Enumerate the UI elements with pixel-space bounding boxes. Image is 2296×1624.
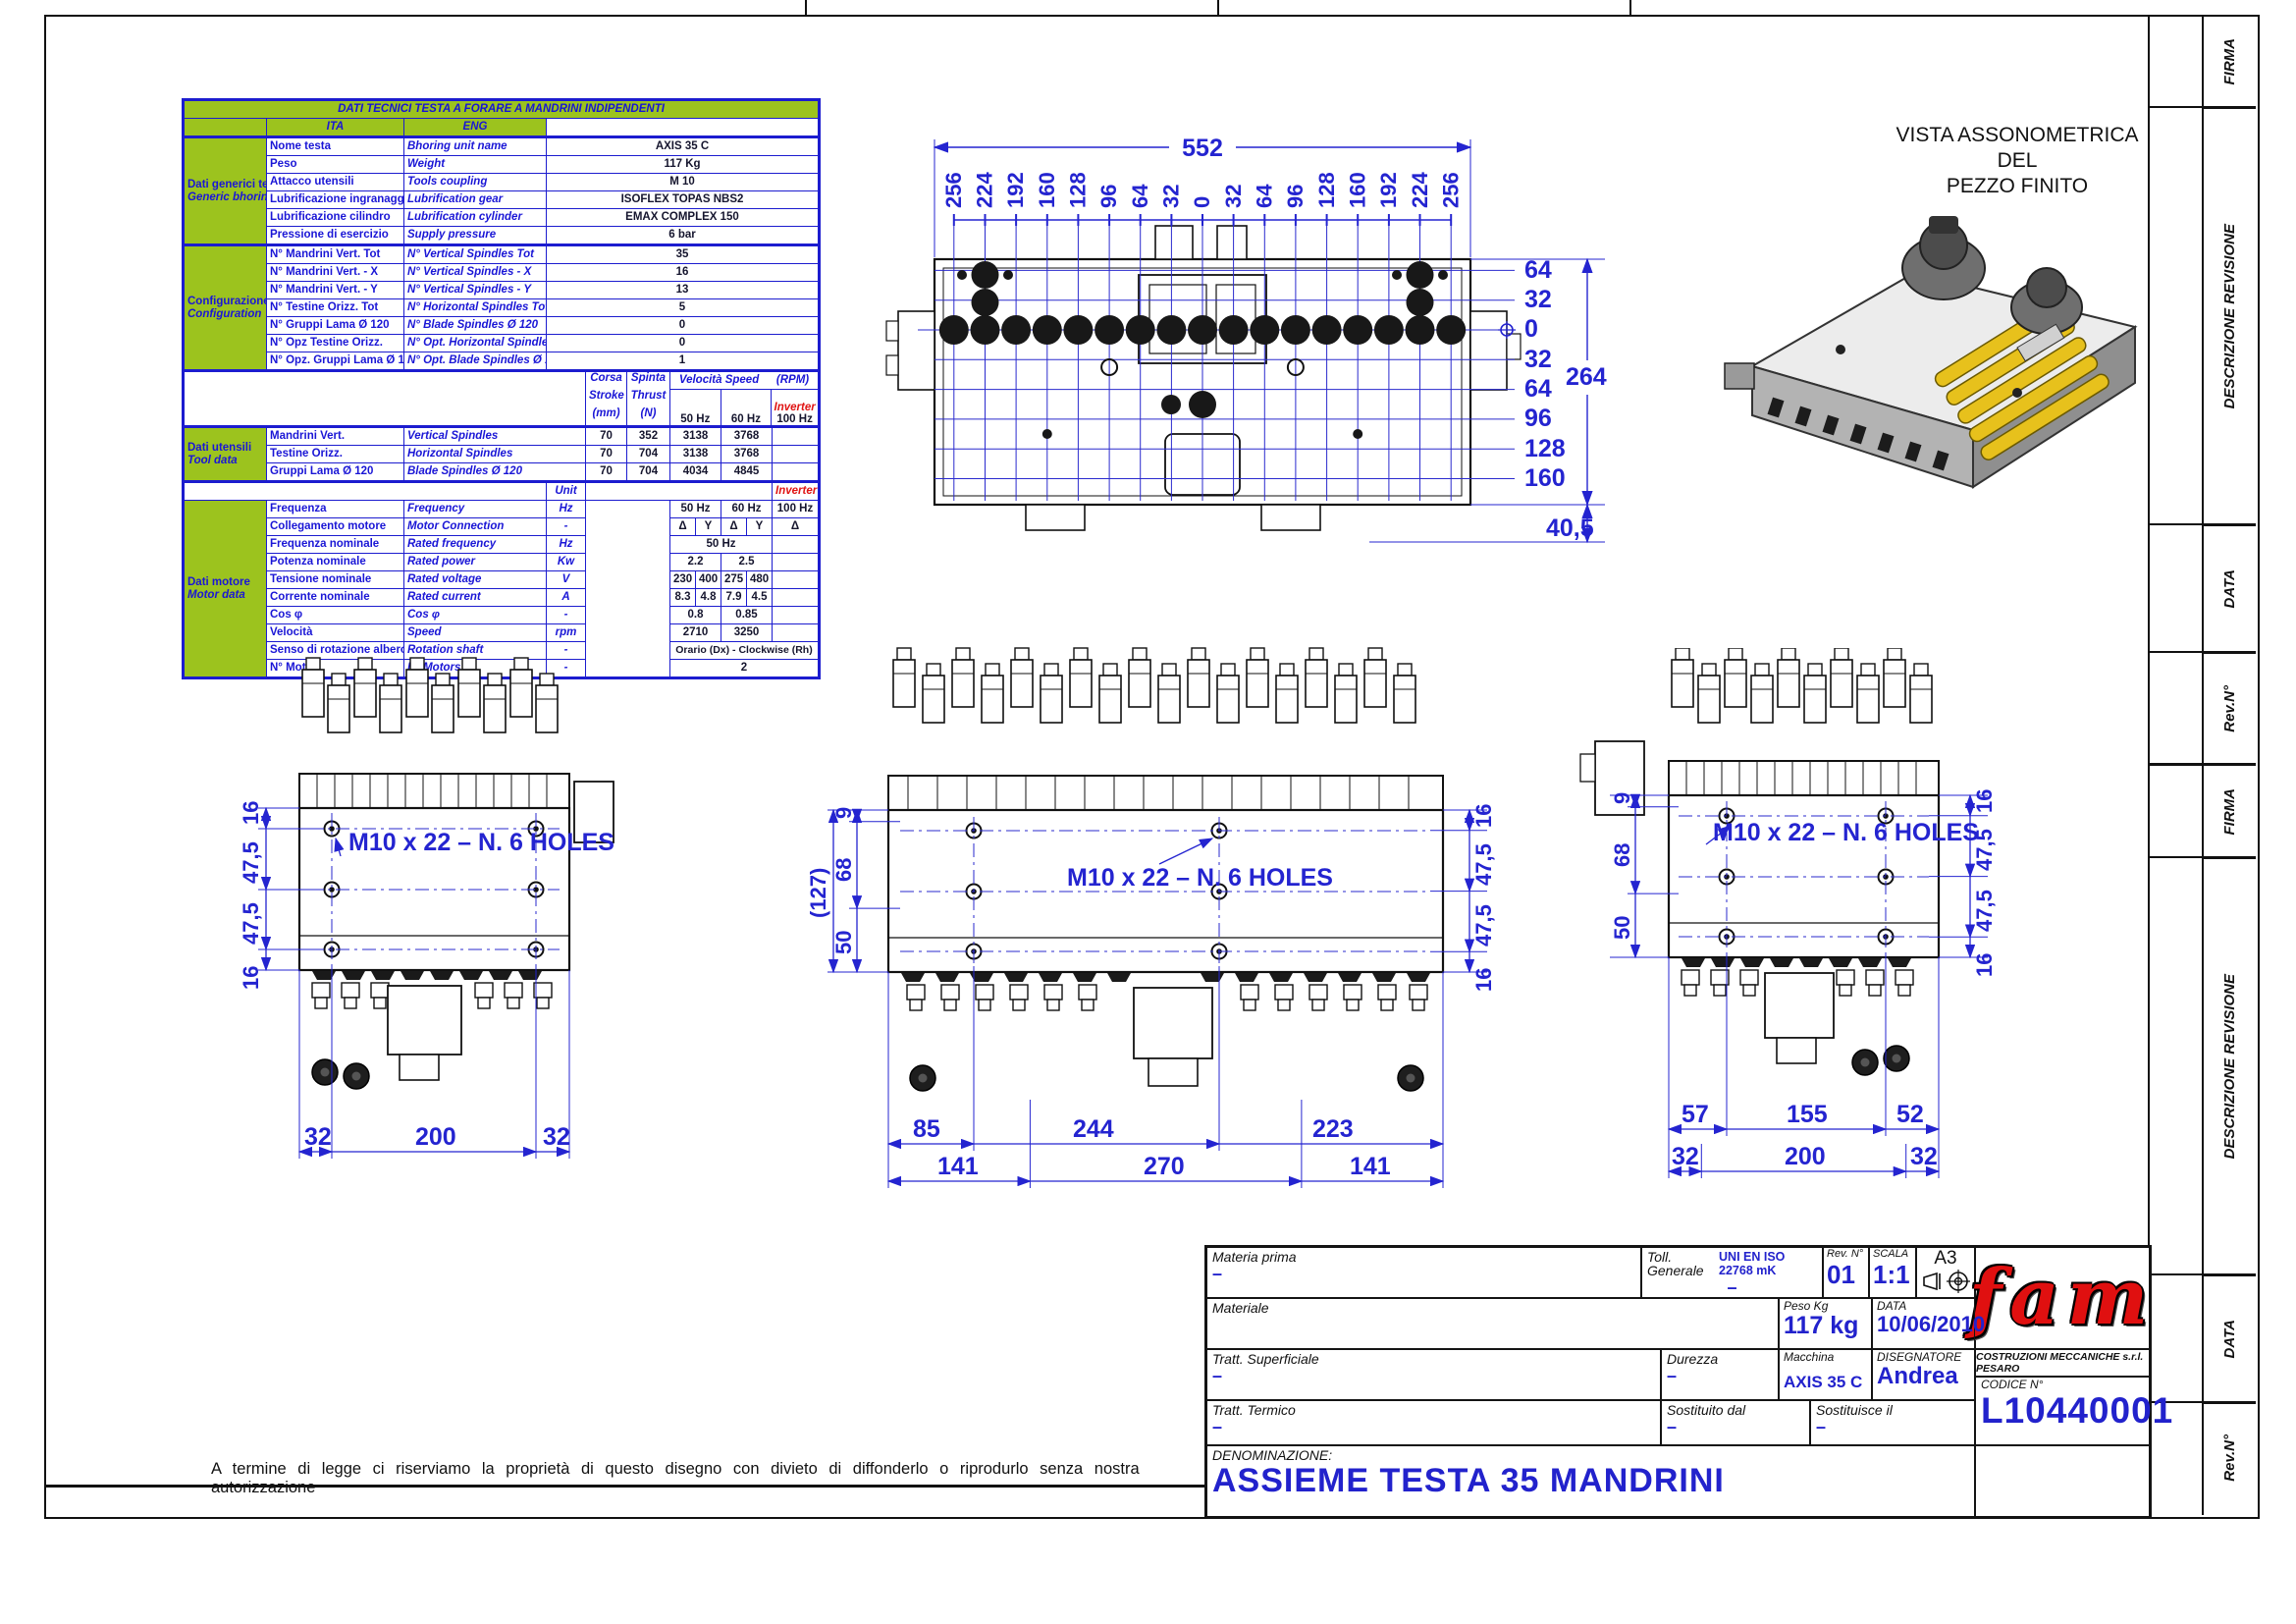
field-value: – [1212, 1366, 1655, 1386]
table-row: Attacco utensiliTools couplingM 10 [184, 174, 820, 191]
disclaimer-rule [44, 1485, 1204, 1488]
field-value: 1:1 [1873, 1260, 1912, 1290]
disegnatore-cell: DISEGNATORE Andrea [1872, 1349, 1975, 1400]
company-cell: COSTRUZIONI MECCANICHE s.r.l. PESARO [1975, 1349, 2150, 1377]
table-row: Corrente nominale Rated current A 8.3 4.… [184, 589, 820, 607]
field-value: – [1816, 1417, 1969, 1437]
field-value: 01 [1827, 1260, 1865, 1290]
dim-label: 16 [1471, 968, 1496, 992]
hz60-header: 60 Hz [721, 390, 773, 425]
dim-label: 223 [1312, 1115, 1354, 1143]
strip-label: DATA [2221, 569, 2238, 608]
table-row: Testine Orizz. Horizontal Spindles 70 70… [184, 446, 820, 463]
dim-label: 47,5 [1471, 843, 1496, 886]
table-row: Configurazione Configuration N° Mandrini… [184, 245, 820, 264]
title-block: Materia prima – Toll. Generale UNI EN IS… [1204, 1245, 2152, 1519]
row-eng: Horizontal Spindles [404, 446, 586, 463]
strip-label: DESCRIZIONE REVISIONE [2221, 224, 2238, 408]
fold-mark [805, 0, 807, 15]
table-row: Cos φ Cos φ - 0.8 0.85 [184, 607, 820, 624]
tech-data-table: DATI TECNICI TESTA A FORARE A MANDRINI I… [182, 98, 821, 679]
table-row: Collegamento motore Motor Connection - Δ… [184, 518, 820, 536]
dim-label: 85 [913, 1115, 940, 1143]
iso-caption-line1: VISTA ASSONOMETRICA [1896, 124, 2139, 146]
dim-label: 96 [1283, 185, 1308, 208]
row-ita: Nome testa [267, 137, 404, 156]
dim-label: 200 [1785, 1143, 1826, 1170]
row-value: 35 [547, 245, 820, 264]
blank-cell [586, 501, 670, 678]
durezza-cell: Durezza – [1661, 1349, 1779, 1400]
strip-label: DESCRIZIONE REVISIONE [2221, 974, 2238, 1159]
row-ita: Mandrini Vert. [267, 427, 404, 446]
row-ita: N° Mandrini Vert. - X [267, 264, 404, 282]
table-row: Lubrificazione ingranaggiLubrification g… [184, 191, 820, 209]
field-value: – [1212, 1264, 1635, 1284]
peso-cell: Peso Kg 117 kg [1779, 1298, 1872, 1349]
top-view-drawing: 552 256 224 192 160 128 96 64 32 0 32 [879, 110, 1644, 552]
table-title: DATI TECNICI TESTA A FORARE A MANDRINI I… [184, 100, 820, 119]
dim-label: 256 [1439, 172, 1464, 208]
company-name: COSTRUZIONI MECCANICHE s.r.l. PESARO [1976, 1351, 2149, 1375]
materia-prima-cell: Materia prima – [1206, 1247, 1641, 1298]
table-row: N° Opz. Gruppi Lama Ø 120N° Opt. Blade S… [184, 352, 820, 371]
row-ita: Attacco utensili [267, 174, 404, 191]
strip-rev-1: Rev.N° [2204, 653, 2256, 766]
strip-label: DATA [2221, 1320, 2238, 1358]
row-value: 117 Kg [547, 156, 820, 174]
section-label-eng: Tool data [187, 455, 263, 466]
dim-label: (127) [810, 868, 830, 918]
dim-label: 64 [1128, 184, 1152, 208]
dim-label: 64 [1524, 256, 1552, 284]
strip-label: FIRMA [2221, 788, 2238, 836]
row-eng: N° Opt. Blade Spindles Ø 120 [404, 352, 547, 371]
field-label: Peso Kg [1784, 1300, 1867, 1312]
iso-drawing [1725, 216, 2135, 487]
speed-inverter [773, 427, 820, 446]
row-eng: Supply pressure [404, 227, 547, 245]
field-value: – [1667, 1366, 1773, 1386]
table-row: Dati motore Motor data Frequenza Frequen… [184, 501, 820, 518]
section-label-eng: Generic bhoring unit data [187, 191, 263, 203]
field-label: Tratt. Superficiale [1212, 1352, 1655, 1366]
row-value: ISOFLEX TOPAS NBS2 [547, 191, 820, 209]
row-eng: N° Blade Spindles Ø 120 [404, 317, 547, 335]
unit-row: Unit Inverter [184, 482, 820, 501]
field-value: – [1647, 1277, 1817, 1298]
legal-disclaimer: A termine di legge ci riserviamo la prop… [211, 1460, 1193, 1497]
field-value: – [1667, 1417, 1804, 1437]
strip-label: FIRMA [2221, 38, 2238, 85]
field-label: Tratt. Termico [1212, 1403, 1655, 1417]
dim-label: 47,5 [1972, 829, 1997, 871]
tratt-superficiale-cell: Tratt. Superficiale – [1206, 1349, 1661, 1400]
col-header-eng: ENG [404, 119, 547, 137]
field-value: – [1212, 1417, 1655, 1437]
thrust-header: SpintaThrust(N) [627, 371, 670, 427]
dim-label: 32 [1672, 1143, 1699, 1170]
dim-label: 96 [1096, 185, 1121, 208]
dim-label: 244 [1073, 1115, 1114, 1143]
table-row: Dati utensili Tool data Mandrini Vert. V… [184, 427, 820, 446]
row-value: M 10 [547, 174, 820, 191]
front-view-right: M10 x 22 – N. 6 HOLES 9 68 50 16 47,5 47… [1551, 648, 2071, 1218]
speed-50hz: 3138 [670, 427, 721, 446]
section-motor: Dati motore Motor data [184, 501, 267, 678]
fold-mark [1629, 0, 1631, 15]
dim-label: 9 [831, 807, 856, 819]
dim-label: 32 [1524, 346, 1552, 373]
paper-format: A3 [1921, 1248, 1970, 1270]
strip-descrizione-2: DESCRIZIONE REVISIONE [2204, 858, 2256, 1276]
dim-label: 32 [1910, 1143, 1938, 1170]
drawing-title: ASSIEME TESTA 35 MANDRINI [1212, 1462, 1969, 1500]
dim-label: 16 [1471, 804, 1496, 828]
dim-label: 16 [1972, 953, 1997, 977]
row-eng: Weight [404, 156, 547, 174]
row-eng: Lubrification gear [404, 191, 547, 209]
row-ita: Frequenza [267, 501, 404, 518]
table-row: Lubrificazione cilindroLubrification cyl… [184, 209, 820, 227]
dim-label: 224 [973, 172, 997, 208]
field-label: DENOMINAZIONE: [1212, 1448, 1969, 1462]
dim-label: 50 [1610, 916, 1634, 940]
dim-label: 128 [1314, 172, 1339, 208]
row-ita: Pressione di esercizio [267, 227, 404, 245]
dim-label: 57 [1682, 1101, 1709, 1128]
holes-label: M10 x 22 – N. 6 HOLES [1067, 864, 1333, 892]
blank-cell [184, 482, 547, 501]
dim-label: 47,5 [1972, 890, 1997, 932]
dim-label: 192 [1376, 172, 1401, 208]
field-label: Macchina [1784, 1351, 1867, 1363]
field-value: L10440001 [1981, 1390, 2144, 1432]
table-row: Tensione nominale Rated voltage V 230 40… [184, 571, 820, 589]
iso-caption-line2: DEL [1998, 149, 2038, 172]
unit-label: Unit [547, 482, 586, 501]
row-eng: N° Vertical Spindles - X [404, 264, 547, 282]
row-value: 1 [547, 352, 820, 371]
dim-label: 160 [1346, 172, 1370, 208]
stroke-header: CorsaStroke(mm) [586, 371, 627, 427]
codice-cell: CODICE N° L10440001 [1975, 1377, 2150, 1445]
table-row: Pressione di esercizioSupply pressure6 b… [184, 227, 820, 245]
strip-firma-2: FIRMA [2204, 765, 2256, 859]
hz50-header: 50 Hz [670, 390, 721, 425]
inverter-label: Inverter [773, 482, 820, 501]
field-value: UNI EN ISO 22768 mK [1719, 1250, 1817, 1277]
row-eng: Lubrification cylinder [404, 209, 547, 227]
thrust-value: 352 [627, 427, 670, 446]
tolleranza-cell: Toll. Generale UNI EN ISO 22768 mK – [1641, 1247, 1823, 1298]
sostituisce-cell: Sostituisce il – [1810, 1400, 1975, 1445]
dim-label: 68 [1610, 843, 1634, 867]
field-label: Rev. N° [1827, 1249, 1865, 1260]
iso-caption-line3: PEZZO FINITO [1947, 175, 2088, 197]
dim-label: 9 [1610, 792, 1634, 804]
dim-label: 141 [937, 1153, 979, 1180]
dim-label: 264 [1566, 363, 1607, 391]
dim-label: 52 [1896, 1101, 1924, 1128]
row-value: AXIS 35 C [547, 137, 820, 156]
row-ita: N° Gruppi Lama Ø 120 [267, 317, 404, 335]
dim-label: 552 [1182, 135, 1223, 162]
section-generic: Dati generici testa Generic bhoring unit… [184, 137, 267, 245]
dim-label: 50 [831, 931, 856, 954]
strip-descrizione-1: DESCRIZIONE REVISIONE [2204, 108, 2256, 526]
scala-cell: SCALA 1:1 [1869, 1247, 1916, 1298]
dim-label: 47,5 [239, 902, 263, 945]
section-config: Configurazione Configuration [184, 245, 267, 371]
table-row: N° Gruppi Lama Ø 120N° Blade Spindles Ø … [184, 317, 820, 335]
row-ita: Testine Orizz. [267, 446, 404, 463]
table-row: PesoWeight117 Kg [184, 156, 820, 174]
row-eng: Blade Spindles Ø 120 [404, 463, 586, 482]
row-eng: Vertical Spindles [404, 427, 586, 446]
row-eng: Frequency [404, 501, 547, 518]
row-eng: Bhoring unit name [404, 137, 547, 156]
table-row: Dati generici testa Generic bhoring unit… [184, 137, 820, 156]
dim-label: 200 [415, 1123, 456, 1151]
dim-label: 32 [304, 1123, 332, 1151]
dim-label: 160 [1524, 464, 1566, 492]
field-label: Materia prima [1212, 1250, 1635, 1264]
strip-data-2: DATA [2204, 1275, 2256, 1404]
row-ita: Peso [267, 156, 404, 174]
dim-label: 155 [1787, 1101, 1828, 1128]
dim-label: 192 [1003, 172, 1028, 208]
row-eng: N° Vertical Spindles - Y [404, 282, 547, 299]
dim-label: 47,5 [1471, 904, 1496, 947]
empty-cell [1975, 1445, 2150, 1517]
dim-label: 32 [543, 1123, 570, 1151]
section-label-eng: Motor data [187, 589, 263, 601]
field-label: Sostituito dal [1667, 1403, 1804, 1417]
row-value: 13 [547, 282, 820, 299]
col-header-values [547, 119, 820, 137]
field-value: AXIS 35 C [1784, 1373, 1867, 1392]
rpm-label: (RPM) [776, 374, 809, 386]
row-eng: N° Vertical Spindles Tot [404, 245, 547, 264]
section-label-ita: Dati motore [187, 576, 263, 588]
macchina-cell: Macchina AXIS 35 C [1779, 1349, 1872, 1400]
section-tool: Dati utensili Tool data [184, 427, 267, 482]
format-cell: A3 [1916, 1247, 1975, 1298]
dim-label: 64 [1253, 184, 1277, 208]
field-label: CODICE N° [1981, 1379, 2144, 1390]
dimensions: M10 x 22 – N. 6 HOLES 16 47,5 47,5 16 32… [239, 801, 614, 1159]
dim-label: 128 [1066, 172, 1091, 208]
tratt-termico-cell: Tratt. Termico – [1206, 1400, 1661, 1445]
field-label: Materiale [1212, 1301, 1773, 1315]
table-row: N° Mandrini Vert. - YN° Vertical Spindle… [184, 282, 820, 299]
front-view-left: M10 x 22 – N. 6 HOLES 16 47,5 47,5 16 32… [231, 656, 633, 1206]
dim-label: 64 [1524, 375, 1552, 403]
row-ita: Lubrificazione ingranaggi [267, 191, 404, 209]
denominazione-cell: DENOMINAZIONE: ASSIEME TESTA 35 MANDRINI [1206, 1445, 1975, 1517]
table-row: Gruppi Lama Ø 120 Blade Spindles Ø 120 7… [184, 463, 820, 482]
field-value: 117 kg [1784, 1312, 1867, 1340]
row-value: 5 [547, 299, 820, 317]
dim-label: 32 [1524, 286, 1552, 313]
section-label-ita: Dati generici testa [187, 179, 263, 190]
dim-label: 96 [1524, 405, 1552, 432]
dim-label: 0 [1190, 196, 1214, 208]
tool-header-row: CorsaStroke(mm) SpintaThrust(N) Velocità… [184, 371, 820, 427]
row-ita: N° Testine Orizz. Tot [267, 299, 404, 317]
row-unit: Hz [547, 501, 586, 518]
drawing-geometry [299, 658, 614, 1089]
field-label: Sostituisce il [1816, 1403, 1969, 1417]
field-label: SCALA [1873, 1249, 1912, 1260]
field-value: Andrea [1877, 1363, 1970, 1390]
dim-label: 40,5 [1546, 514, 1594, 542]
col-header-ita: ITA [267, 119, 404, 137]
speed-60hz: 3768 [721, 427, 773, 446]
strip-label: Rev.N° [2221, 1435, 2238, 1482]
speed-label: Velocità Speed [679, 374, 759, 386]
dim-label: 16 [239, 966, 263, 990]
dim-label: 256 [941, 172, 966, 208]
section-label-ita: Dati utensili [187, 442, 263, 454]
table-row: Potenza nominale Rated power Kw 2.2 2.5 [184, 554, 820, 571]
strip-data-1: DATA [2204, 525, 2256, 654]
dim-label: 141 [1350, 1153, 1391, 1180]
data-cell: DATA 10/06/2010 [1872, 1298, 1975, 1349]
strip-label: Rev.N° [2221, 685, 2238, 732]
table-row: N° Mandrini Vert. - XN° Vertical Spindle… [184, 264, 820, 282]
section-label-eng: Configuration [187, 308, 263, 320]
row-ita: Lubrificazione cilindro [267, 209, 404, 227]
row-value: 16 [547, 264, 820, 282]
fold-mark [1217, 0, 1219, 15]
table-row: Velocità Speed rpm 2710 3250 [184, 624, 820, 642]
blank-cell [586, 482, 773, 501]
table-row: N° Opz Testine Orizz.N° Opt. Horizontal … [184, 335, 820, 352]
row-eng: N° Opt. Horizontal Spindles [404, 335, 547, 352]
row-eng: N° Horizontal Spindles Tot [404, 299, 547, 317]
dim-label: 16 [239, 801, 263, 825]
strip-rev-2: Rev.N° [2204, 1403, 2256, 1513]
row-eng: Tools coupling [404, 174, 547, 191]
logo-cell: fam [1975, 1247, 2150, 1349]
isometric-view: VISTA ASSONOMETRICA DEL PEZZO FINITO [1723, 116, 2155, 509]
row-ita: N° Opz. Gruppi Lama Ø 120 [267, 352, 404, 371]
row-value: 0 [547, 335, 820, 352]
section-label-ita: Configurazione [187, 296, 263, 307]
field-label: Toll. Generale [1647, 1250, 1713, 1277]
strip-firma-1: FIRMA [2204, 15, 2256, 109]
dim-label: 68 [831, 858, 856, 882]
speed-header: Velocità Speed (RPM) 50 Hz 60 Hz Inverte… [670, 371, 820, 427]
holes-label: M10 x 22 – N. 6 HOLES [348, 829, 614, 856]
row-value: EMAX COMPLEX 150 [547, 209, 820, 227]
rev-cell: Rev. N° 01 [1823, 1247, 1869, 1298]
dim-label: 128 [1524, 435, 1566, 462]
table-row: Frequenza nominale Rated frequency Hz 50… [184, 536, 820, 554]
dim-label: 160 [1035, 172, 1059, 208]
projection-symbol-icon [1921, 1270, 1972, 1293]
dim-label: 270 [1144, 1153, 1185, 1180]
dim-label: 32 [1221, 185, 1246, 208]
dim-label: 0 [1524, 315, 1538, 343]
field-label: DATA [1877, 1300, 1970, 1312]
dim-label: 224 [1408, 172, 1432, 208]
blank-cell [184, 371, 586, 427]
row-ita: Gruppi Lama Ø 120 [267, 463, 404, 482]
front-view-middle: M10 x 22 – N. 6 HOLES 9 68 50 (127) 16 4… [810, 638, 1526, 1227]
table-corner [184, 119, 267, 137]
row-ita: N° Opz Testine Orizz. [267, 335, 404, 352]
row-ita: N° Mandrini Vert. Tot [267, 245, 404, 264]
materiale-cell: Materiale [1206, 1298, 1779, 1349]
table-row: N° Testine Orizz. TotN° Horizontal Spind… [184, 299, 820, 317]
fam-logo: fam [1969, 1264, 2157, 1332]
field-value: 10/06/2010 [1877, 1312, 1970, 1337]
row-ita: N° Mandrini Vert. - Y [267, 282, 404, 299]
row-value: 0 [547, 317, 820, 335]
dim-label: 16 [1972, 789, 1997, 813]
field-label: Durezza [1667, 1352, 1773, 1366]
field-label: DISEGNATORE [1877, 1351, 1970, 1363]
drawing-sheet: DATI TECNICI TESTA A FORARE A MANDRINI I… [0, 0, 2296, 1624]
stroke-value: 70 [586, 427, 627, 446]
holes-label: M10 x 22 – N. 6 HOLES [1713, 819, 1979, 846]
inverter-header: Inverter100 Hz [772, 390, 818, 425]
sostituito-cell: Sostituito dal – [1661, 1400, 1810, 1445]
dim-label: 47,5 [239, 841, 263, 884]
row-value: 6 bar [547, 227, 820, 245]
dim-label: 32 [1159, 185, 1184, 208]
